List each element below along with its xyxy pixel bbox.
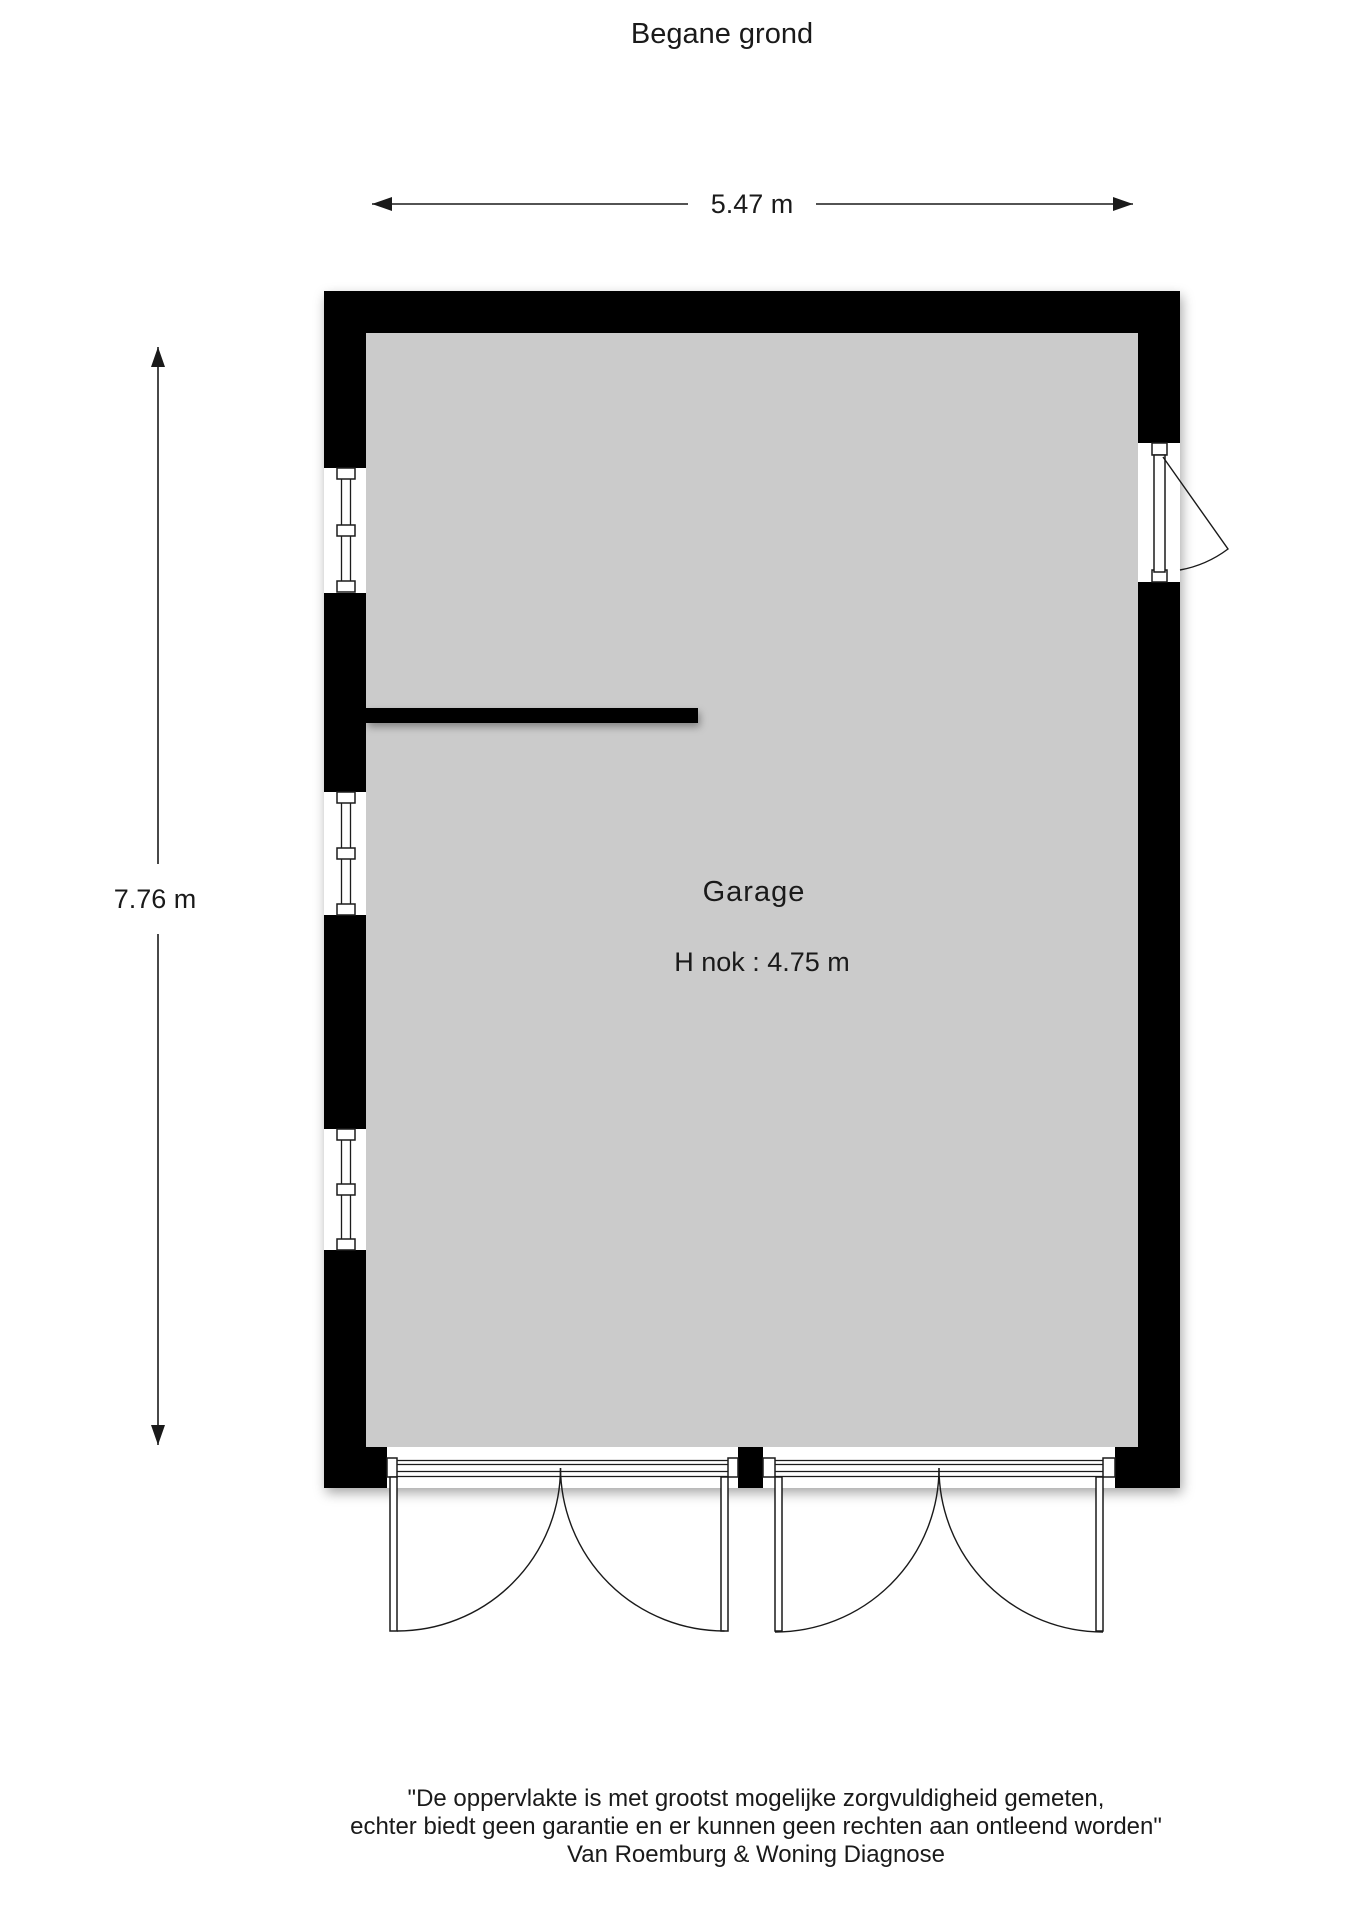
footer-line-1: "De oppervlakte is met grootst mogelijke… [408,1785,1105,1812]
wall-bottom-left-pier [324,1447,387,1488]
window-1-frame-top [337,468,355,479]
garage-door-right-jamb-left [763,1458,775,1477]
footer-line-3: Van Roemburg & Woning Diagnose [567,1841,945,1868]
garage-door-left-leaf-left [390,1477,397,1631]
garage-door-right-leaves [775,1468,1103,1632]
window-3-frame-mid [337,1184,355,1195]
window-2-frame-bottom [337,904,355,915]
garage-door-left-jamb-right [728,1458,738,1477]
room-height-note: H nok : 4.75 m [674,947,850,977]
side-door-frame-top [1152,443,1167,455]
garage-door-left-leaf-right [721,1477,728,1631]
garage-door-left-jamb-left [387,1458,397,1477]
dimension-height-label: 7.76 m [114,884,197,914]
window-3-frame-top [337,1129,355,1140]
wall-top [324,291,1180,333]
side-door-leaf [1154,455,1165,572]
wall-left-seg3 [324,915,366,1129]
window-2-frame-mid [337,848,355,859]
dimension-width: 5.47 m [372,189,1133,219]
garage-door-right-leaf-left [775,1477,782,1631]
dimension-width-label: 5.47 m [711,189,794,219]
arrow-up-icon [151,347,165,367]
page-title: Begane grond [631,18,813,50]
wall-bottom-center-pier [738,1447,763,1488]
arrow-down-icon [151,1425,165,1445]
garage-door-right-leaf-right [1096,1477,1103,1631]
floorplan-page: Begane grond 5.47 m 7.76 m [0,0,1358,1920]
window-3 [324,1129,366,1250]
window-1-frame-bottom [337,581,355,592]
footer-disclaimer: "De oppervlakte is met grootst mogelijke… [350,1785,1162,1868]
wall-left-seg2 [324,593,366,792]
window-3-frame-bottom [337,1239,355,1250]
wall-bottom-right-pier [1115,1447,1180,1488]
garage-door-right-swing-arc-right [939,1468,1103,1632]
wall-right-seg1 [1138,291,1180,443]
garage-door-left-swing-arc-left [397,1468,561,1631]
wall-left-seg1 [324,291,366,468]
arrow-left-icon [372,197,392,211]
floorplan-canvas: Begane grond 5.47 m 7.76 m [0,0,1358,1920]
footer-line-2: echter biedt geen garantie en er kunnen … [350,1813,1162,1840]
window-2 [324,792,366,915]
window-1-frame-mid [337,525,355,536]
dimension-height: 7.76 m [114,347,197,1445]
room-name-label: Garage [703,876,806,908]
garage-door-left-opening [387,1447,738,1488]
interior-wall [366,708,698,723]
side-door [1138,443,1180,582]
wall-right-seg2 [1138,582,1180,1488]
window-2-frame-top [337,792,355,803]
garage-door-left-swing-arc-right [561,1468,725,1631]
garage-door-left-leaves [390,1468,728,1631]
garage-door-right-swing-arc-left [775,1468,939,1632]
window-1 [324,468,366,593]
arrow-right-icon [1113,197,1133,211]
garage-door-left [387,1447,738,1488]
garage-door-right-jamb-right [1103,1458,1115,1477]
